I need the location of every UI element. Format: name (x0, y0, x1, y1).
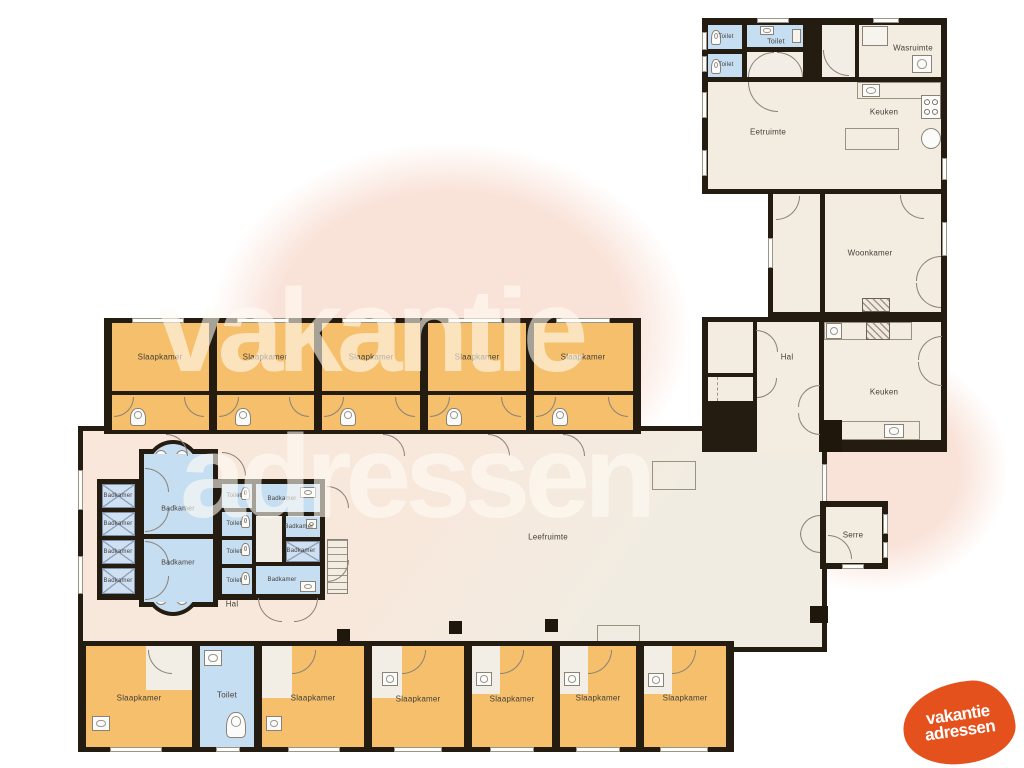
label-badkamer: Badkamer (104, 578, 133, 584)
window (132, 318, 184, 323)
label-slaapkamer: Slaapkamer (490, 695, 535, 704)
washer-icon (862, 26, 888, 46)
toilet-icon (340, 408, 356, 426)
label-keuken-2: Keuken (870, 388, 898, 397)
window (110, 747, 162, 752)
window (394, 747, 442, 752)
label-badkamer: Badkamer (268, 496, 297, 502)
window (842, 564, 864, 569)
vestibule (560, 646, 588, 694)
label-slaapkamer: Slaapkamer (561, 353, 606, 362)
logo-text: vakantie adressen (898, 675, 1020, 768)
window (448, 318, 502, 323)
stove-icon (921, 95, 941, 119)
window (702, 56, 707, 72)
window (702, 32, 707, 50)
label-keuken: Keuken (870, 108, 898, 117)
label-toilet: Toilet (226, 493, 241, 499)
vestibule (262, 646, 292, 698)
furniture (652, 461, 696, 490)
window (883, 514, 888, 534)
toilet-icon (130, 408, 146, 426)
label-wasruimte: Wasruimte (893, 44, 933, 53)
sink-icon (862, 84, 880, 97)
window (556, 318, 610, 323)
pillar (545, 619, 558, 632)
sink-icon (92, 716, 110, 731)
window (768, 238, 773, 268)
kitchen-island (845, 128, 899, 150)
label-eetruimte: Eetruimte (750, 128, 786, 137)
room-storage-1 (708, 322, 753, 373)
window (216, 747, 240, 752)
label-leefruimte: Leefruimte (528, 533, 568, 542)
room-storage-2 (708, 377, 753, 401)
toilet-icon (241, 515, 250, 528)
label-badkamer: Badkamer (287, 548, 316, 554)
label-hal-center: Hal (226, 600, 239, 609)
label-badkamer: Badkamer (161, 506, 195, 513)
label-toilet: Toilet (718, 34, 733, 40)
label-badkamer: Badkamer (268, 577, 297, 583)
pillar (449, 621, 462, 634)
sink-icon (382, 672, 398, 686)
sink-icon (204, 650, 222, 666)
label-toilet: Toilet (767, 39, 785, 46)
washer-icon (912, 55, 932, 73)
window (942, 158, 947, 180)
sink-icon (760, 26, 774, 35)
fireplace (862, 298, 890, 312)
toilet-icon (226, 712, 246, 738)
label-badkamer: Badkamer (104, 493, 133, 499)
window (757, 18, 789, 23)
label-slaapkamer: Slaapkamer (576, 694, 621, 703)
window (490, 747, 534, 752)
vestibule (472, 646, 500, 694)
label-badkamer: Badkamer (285, 524, 314, 530)
wall-block (810, 606, 828, 623)
window (342, 318, 396, 323)
wall-block (820, 420, 842, 452)
closet-divider (717, 377, 719, 401)
label-toilet: Toilet (718, 62, 733, 68)
sink-icon (884, 424, 904, 438)
label-serre: Serre (843, 531, 864, 540)
label-woonkamer: Woonkamer (848, 249, 893, 258)
cluster-passage (256, 516, 282, 562)
toilet-icon (241, 543, 250, 556)
window (288, 747, 340, 752)
sink-icon (266, 716, 282, 731)
window (883, 542, 888, 558)
fixture (792, 29, 801, 43)
sink-icon (648, 673, 664, 687)
window (660, 747, 708, 752)
label-slaapkamer: Slaapkamer (291, 694, 336, 703)
label-slaapkamer: Slaapkamer (349, 353, 394, 362)
label-badkamer: Badkamer (104, 521, 133, 527)
label-slaapkamer: Slaapkamer (243, 353, 288, 362)
window (873, 18, 899, 23)
toilet-icon (241, 487, 250, 500)
window (576, 747, 620, 752)
vakantieadressen-logo: vakantie adressen (903, 682, 1015, 764)
label-toilet: Toilet (226, 578, 241, 584)
label-toilet: Toilet (226, 549, 241, 555)
label-toilet-bottom: Toilet (217, 691, 237, 700)
appliance-icon (826, 323, 842, 339)
stove-icon (866, 322, 890, 340)
label-slaapkamer: Slaapkamer (138, 353, 183, 362)
window (78, 556, 83, 594)
label-toilet: Toilet (226, 521, 241, 527)
label-slaapkamer: Slaapkamer (396, 695, 441, 704)
label-badkamer: Badkamer (104, 549, 133, 555)
toilet-icon (241, 572, 250, 585)
toilet-icon (552, 408, 568, 426)
toilet-icon (235, 408, 251, 426)
window (942, 222, 947, 256)
sink-icon (476, 672, 492, 686)
toilet-icon (446, 408, 462, 426)
sink-icon (564, 672, 580, 686)
sink-icon (300, 487, 316, 498)
window (78, 470, 83, 510)
label-hal: Hal (781, 353, 794, 362)
label-slaapkamer: Slaapkamer (663, 694, 708, 703)
sink-icon (300, 581, 316, 592)
counter (840, 421, 920, 440)
window (702, 92, 707, 118)
window (702, 150, 707, 176)
label-slaapkamer: Slaapkamer (117, 694, 162, 703)
round-sink-icon (921, 128, 941, 149)
floorplan: Toilet Toilet Toilet Wasruimte Keuken Ee… (0, 0, 1024, 768)
window (237, 318, 289, 323)
label-badkamer: Badkamer (161, 560, 195, 567)
window (822, 464, 827, 502)
label-slaapkamer: Slaapkamer (455, 353, 500, 362)
